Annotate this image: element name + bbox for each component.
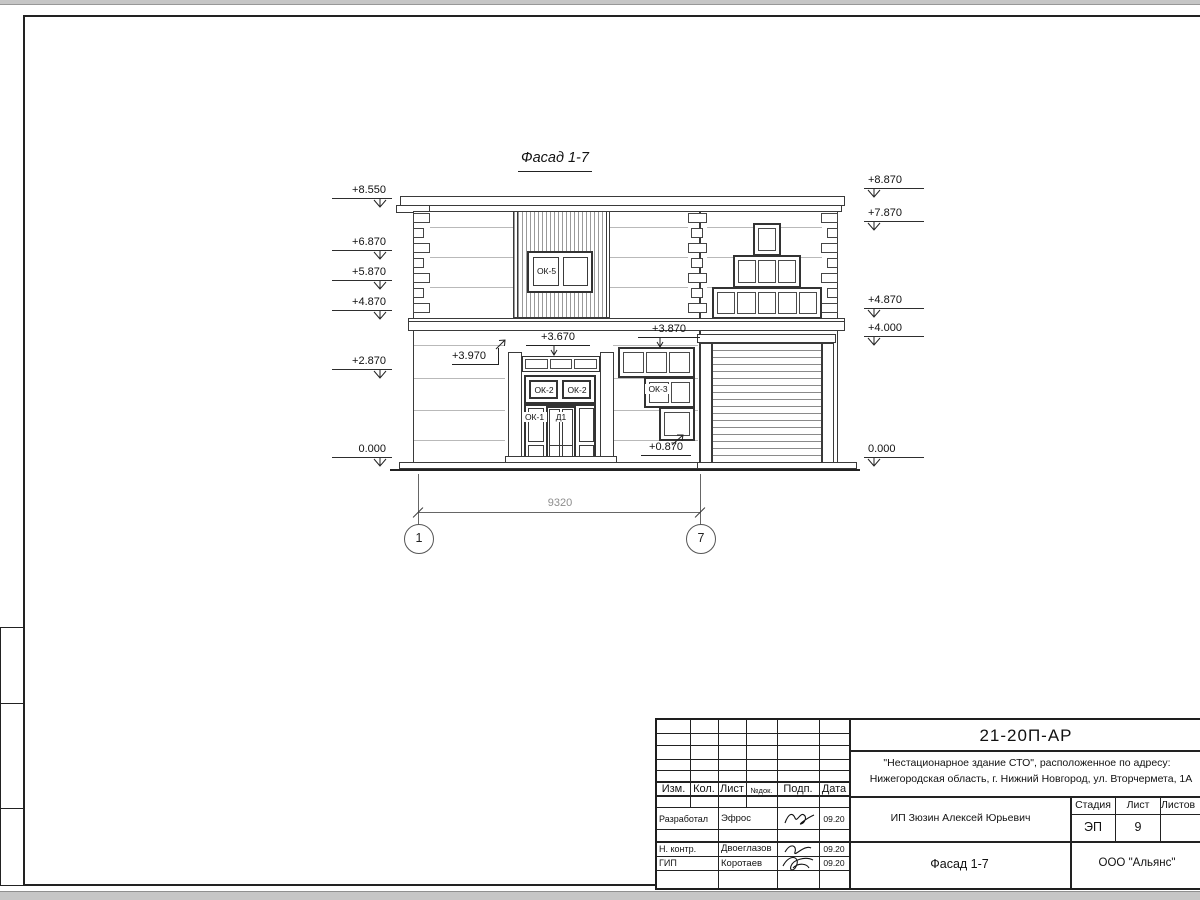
tb-project-line2: Нижегородская область, г. Нижний Новгоро…: [849, 773, 1200, 785]
siding-line: [610, 287, 688, 288]
window-ok3-tier1: [618, 347, 695, 378]
quoin-brick: [821, 243, 838, 253]
elevation-arrow-icon: [372, 199, 388, 208]
elevation-value: +4.870: [332, 296, 392, 311]
ok3-pane: [671, 382, 691, 403]
elevation-marker: +5.870: [332, 266, 392, 281]
tb-sheets-label: Листов: [1161, 799, 1200, 811]
slat-edge: [606, 212, 607, 317]
leader-arrow-icon: [494, 337, 508, 350]
quoin-brick: [413, 273, 430, 283]
elevation-value: +6.870: [332, 236, 392, 251]
tb-name: Эфрос: [721, 813, 777, 824]
signature: [781, 808, 819, 828]
door-label-d1: Д1: [552, 412, 570, 422]
window-ok5-pane: [563, 257, 588, 286]
tb-gridline: [657, 770, 849, 771]
elevation-arrow-icon: [372, 311, 388, 320]
tb-gridline: [657, 807, 849, 808]
facade-drawing: Фасад 1-7 ОК-5: [0, 0, 1200, 700]
elevation-arrow-icon: [372, 458, 388, 467]
siding-line: [414, 378, 505, 379]
tb-gridline: [657, 745, 849, 746]
siding-line: [430, 227, 513, 228]
elevation-value: +4.870: [864, 294, 924, 309]
paper-edge-bottom: [0, 891, 1200, 900]
door-panel-line: [549, 445, 573, 446]
drawing-sheet: Фасад 1-7 ОК-5: [0, 0, 1200, 900]
elevation-marker: 0.000: [864, 443, 924, 458]
elevation-marker: +6.870: [332, 236, 392, 251]
axis-bubble-7: 7: [686, 524, 716, 554]
tb-sheet-title: Фасад 1-7: [849, 857, 1070, 871]
tb-col-izm: Изм.: [657, 783, 690, 795]
tb-client: ИП Зюзин Алексей Юрьевич: [851, 812, 1070, 824]
tb-gridline: [657, 733, 849, 734]
elevation-value: +7.870: [864, 207, 924, 222]
ok3-pane: [623, 352, 644, 373]
quoin-brick: [413, 228, 424, 238]
tb-col-list: Лист: [718, 783, 746, 795]
quoin-brick: [413, 213, 430, 223]
elevation-arrow-icon: [372, 251, 388, 260]
ok3-pane: [646, 352, 667, 373]
pyramid-window-tier3: [712, 287, 822, 319]
quoin-brick: [691, 228, 703, 238]
elevation-value: 0.000: [864, 443, 924, 458]
pyramid-pane: [758, 260, 776, 283]
annotation-transom-top: +3.670: [526, 331, 590, 343]
tb-gridline: [849, 841, 1200, 843]
tb-stage-value: ЭП: [1071, 820, 1115, 834]
sidelight-right-glass: [579, 408, 594, 442]
tb-gridline: [849, 796, 1200, 798]
annotation-bracket: [498, 348, 499, 365]
elevation-marker: +8.550: [332, 184, 392, 199]
transom-pane: [525, 359, 548, 369]
elevation-value: +4.000: [864, 322, 924, 337]
tb-date: 09.20: [820, 858, 848, 868]
extension-line: [418, 474, 419, 525]
quoin-column-right: [821, 213, 838, 318]
leader-arrow-icon: [654, 337, 666, 348]
tb-name: Двоеглазов: [721, 843, 779, 854]
elevation-arrow-icon: [372, 370, 388, 379]
quoin-brick: [827, 258, 838, 268]
siding-line: [414, 440, 505, 441]
tb-col-kol: Кол.: [690, 783, 718, 795]
axis-bubble-1: 1: [404, 524, 434, 554]
pyramid-pane: [778, 260, 796, 283]
siding-line: [414, 345, 505, 346]
annotation-underline: [641, 455, 691, 456]
dimension-line: [418, 512, 701, 513]
annotation-portal-top: +3.970: [452, 350, 498, 362]
view-title-underline: [518, 171, 592, 172]
tb-gridline: [657, 759, 849, 760]
pyramid-pane: [799, 292, 817, 314]
pyramid-pane: [778, 292, 796, 314]
floor-band: [408, 318, 845, 331]
portal-pilaster-left: [508, 352, 522, 466]
elevation-marker: 0.000: [332, 443, 392, 458]
elevation-arrow-icon: [372, 281, 388, 290]
tb-col-data: Дата: [819, 783, 849, 795]
quoin-column-left: [413, 213, 430, 318]
window-label-ok2: ОК-2: [565, 385, 589, 395]
entrance-step: [505, 456, 617, 463]
elevation-value: +2.870: [332, 355, 392, 370]
window-label-ok5: ОК-5: [535, 266, 558, 276]
pyramid-pane: [738, 260, 756, 283]
quoin-brick: [413, 303, 430, 313]
elevation-arrow-icon: [866, 309, 882, 318]
tb-col-ndok: №док.: [746, 786, 777, 795]
quoin-brick: [691, 258, 703, 268]
window-label-ok2: ОК-2: [532, 385, 556, 395]
quoin-brick: [827, 228, 838, 238]
pyramid-window-tier1: [753, 223, 781, 256]
elevation-arrow-icon: [866, 222, 882, 231]
tb-role: Н. контр.: [659, 844, 718, 854]
transom-pane: [550, 359, 573, 369]
title-block: Изм. Кол. Лист №док. Подп. Дата Разработ…: [655, 718, 1200, 890]
quoin-brick: [688, 303, 707, 313]
quoin-brick: [688, 243, 707, 253]
tb-role: ГИП: [659, 858, 718, 868]
elevation-marker: +2.870: [332, 355, 392, 370]
quoin-column-middle: [688, 213, 707, 318]
quoin-brick: [691, 288, 703, 298]
garage-lintel: [697, 334, 836, 343]
quoin-brick: [821, 303, 838, 313]
slat-edge: [517, 212, 518, 317]
window-label-ok3: ОК-3: [645, 384, 671, 394]
elevation-value: +5.870: [332, 266, 392, 281]
pyramid-pane: [758, 228, 776, 251]
siding-line: [430, 287, 513, 288]
annotation-underline: [638, 337, 700, 338]
pyramid-pane: [737, 292, 755, 314]
leader-arrow-icon: [548, 345, 560, 356]
elevation-arrow-icon: [866, 458, 882, 467]
siding-line: [610, 257, 688, 258]
elevation-value: 0.000: [332, 443, 392, 458]
ground-line: [390, 469, 860, 471]
annotation-underline: [452, 364, 499, 365]
ok3-pane: [669, 352, 690, 373]
tb-company: ООО "Альянс": [1071, 857, 1200, 869]
quoin-brick: [413, 243, 430, 253]
transom-pane: [574, 359, 597, 369]
tb-date: 09.20: [820, 814, 848, 824]
quoin-brick: [413, 258, 424, 268]
quoin-brick: [821, 213, 838, 223]
extension-line: [700, 474, 701, 525]
quoin-brick: [827, 288, 838, 298]
elevation-marker: +4.870: [332, 296, 392, 311]
elevation-marker: +4.000: [864, 322, 924, 337]
tb-doc-number: 21-20П-АР: [849, 726, 1200, 746]
elevation-value: +8.550: [332, 184, 392, 199]
tb-gridline: [657, 829, 849, 830]
portal-pilaster-right: [600, 352, 614, 466]
pyramid-window-tier2: [733, 255, 801, 288]
tb-gridline: [1070, 814, 1200, 815]
elevation-arrow-icon: [866, 337, 882, 346]
elevation-marker: +8.870: [864, 174, 924, 189]
portal-transom: [522, 356, 600, 372]
quoin-brick: [821, 273, 838, 283]
margin-box-2: [0, 703, 24, 809]
signature: [779, 840, 821, 874]
tb-col-podp: Подп.: [777, 783, 819, 795]
tb-stage-label: Стадия: [1071, 799, 1115, 811]
garage-post-left: [700, 343, 712, 464]
tb-gridline: [657, 795, 849, 797]
margin-box-3: [0, 808, 24, 886]
quoin-brick: [688, 213, 707, 223]
quoin-brick: [688, 273, 707, 283]
tb-sheet-label: Лист: [1116, 799, 1160, 811]
garage-post-right: [822, 343, 834, 464]
view-title: Фасад 1-7: [495, 150, 615, 166]
tb-sheet-value: 9: [1116, 820, 1160, 834]
siding-line: [414, 410, 505, 411]
pyramid-pane: [758, 292, 776, 314]
elevation-marker: +7.870: [864, 207, 924, 222]
dimension-value: 9320: [518, 497, 602, 509]
pyramid-pane: [717, 292, 735, 314]
siding-line: [430, 257, 513, 258]
elevation-marker: +4.870: [864, 294, 924, 309]
tb-role: Разработал: [659, 814, 718, 824]
floor-band-line: [409, 321, 844, 322]
tb-name: Коротаев: [721, 858, 779, 869]
elevation-value: +8.870: [864, 174, 924, 189]
tb-project-line1: "Нестационарное здание СТО", расположенн…: [851, 757, 1200, 769]
annotation-ok3-top: +3.870: [638, 323, 700, 335]
siding-line: [610, 227, 688, 228]
quoin-brick: [413, 288, 424, 298]
elevation-arrow-icon: [866, 189, 882, 198]
window-label-ok1: ОК-1: [522, 412, 547, 422]
garage-threshold: [697, 462, 857, 469]
garage-roller-door: [712, 343, 822, 464]
tb-gridline: [849, 750, 1200, 752]
leader-arrow-icon: [670, 432, 686, 446]
tb-date: 09.20: [820, 844, 848, 854]
